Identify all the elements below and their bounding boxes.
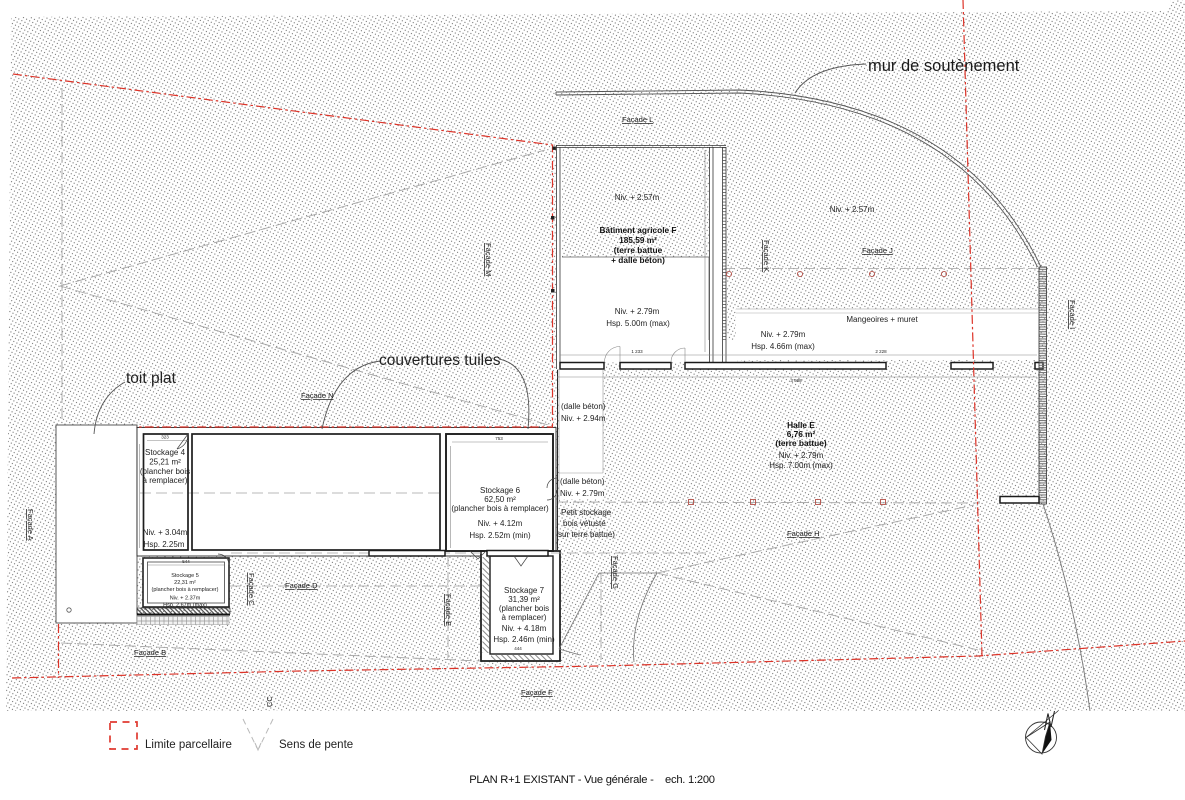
svg-text:Petit stockage: Petit stockage [561,508,612,517]
svg-text:Niv. + 4.12m: Niv. + 4.12m [478,519,523,528]
svg-text:Hsp. 2.46m (min): Hsp. 2.46m (min) [493,635,555,644]
svg-text:Stockage 6: Stockage 6 [480,486,521,495]
svg-text:Hsp. 2.67m (max): Hsp. 2.67m (max) [163,603,207,609]
svg-text:Façade M: Façade M [484,243,493,276]
svg-text:Stockage 7: Stockage 7 [504,586,545,595]
svg-text:Hsp. 7.00m (max): Hsp. 7.00m (max) [769,461,833,470]
svg-text:Façade A: Façade A [26,509,35,541]
svg-text:62,50 m²: 62,50 m² [484,495,516,504]
svg-text:Façade D: Façade D [285,581,318,590]
svg-text:toit plat: toit plat [126,370,177,387]
svg-text:Niv. + 2.79m: Niv. + 2.79m [560,489,605,498]
svg-text:(terre battue: (terre battue [614,245,663,255]
svg-text:Limite parcellaire: Limite parcellaire [145,739,232,751]
svg-text:3 988: 3 988 [790,378,802,383]
svg-text:Stockage 5: Stockage 5 [171,573,199,579]
svg-text:Hsp. 2.25m: Hsp. 2.25m [144,540,185,549]
svg-text:couvertures tuiles: couvertures tuiles [379,352,501,369]
svg-text:Niv. + 2.37m: Niv. + 2.37m [170,596,201,602]
svg-text:Façade I: Façade I [1068,300,1077,329]
svg-text:22,31 m²: 22,31 m² [174,580,196,586]
svg-text:Stockage 4: Stockage 4 [145,448,186,457]
svg-text:444: 444 [514,646,522,651]
svg-text:(plancher bois: (plancher bois [140,467,190,476]
svg-text:Niv. + 2.79m: Niv. + 2.79m [615,307,660,316]
svg-text:Façade J: Façade J [862,246,893,255]
svg-text:(plancher bois à remplacer): (plancher bois à remplacer) [152,587,219,593]
svg-text:Façade C: Façade C [247,573,256,606]
svg-text:Façade L: Façade L [622,115,653,124]
svg-text:à remplacer): à remplacer) [143,476,188,485]
svg-text:Niv. + 4.18m: Niv. + 4.18m [502,624,547,633]
svg-text:544: 544 [182,559,190,564]
svg-text:Façade K: Façade K [762,240,771,272]
svg-text:(plancher bois à remplacer): (plancher bois à remplacer) [451,504,549,513]
svg-text:Niv. + 3.04m: Niv. + 3.04m [143,528,188,537]
svg-text:185,59 m²: 185,59 m² [619,235,657,245]
svg-text:Hsp. 4.66m (max): Hsp. 4.66m (max) [751,342,815,351]
svg-text:Hsp. 5.00m (max): Hsp. 5.00m (max) [606,319,670,328]
svg-text:1 233: 1 233 [631,349,643,354]
svg-text:Niv. + 2.79m: Niv. + 2.79m [779,451,824,460]
svg-text:Niv. + 2.57m: Niv. + 2.57m [615,193,660,202]
svg-text:(dalle béton): (dalle béton) [561,402,606,411]
svg-text:bois vétusté: bois vétusté [563,519,606,528]
svg-text:25,21 m²: 25,21 m² [149,458,181,467]
svg-text:mur de soutènement: mur de soutènement [868,57,1020,75]
svg-text:+ dalle béton): + dalle béton) [611,255,665,265]
svg-text:Sens de pente: Sens de pente [279,739,353,751]
svg-text:753: 753 [495,436,503,441]
svg-text:Façade N: Façade N [301,391,334,400]
svg-text:Façade H: Façade H [787,529,820,538]
svg-text:Façade F: Façade F [521,688,553,697]
svg-text:à remplacer): à remplacer) [502,613,547,622]
svg-text:Façade G: Façade G [611,556,620,589]
svg-text:Façade E: Façade E [444,594,453,626]
svg-text:Niv. + 2.79m: Niv. + 2.79m [761,330,806,339]
svg-text:sur terre battue): sur terre battue) [558,530,615,539]
svg-text:31,39 m²: 31,39 m² [508,595,540,604]
svg-text:CC: CC [265,696,274,707]
svg-text:PLAN R+1 EXISTANT - Vue généra: PLAN R+1 EXISTANT - Vue générale - ech. … [469,774,715,786]
svg-text:323: 323 [161,435,169,440]
svg-text:(plancher bois: (plancher bois [499,604,549,613]
svg-text:Niv. + 2.57m: Niv. + 2.57m [830,205,875,214]
svg-text:Bâtiment agricole F: Bâtiment agricole F [600,225,677,235]
svg-text:Niv. + 2.94m: Niv. + 2.94m [561,414,606,423]
svg-text:2 228: 2 228 [875,349,887,354]
svg-text:(terre battue): (terre battue) [775,438,826,448]
svg-text:Hsp. 2.52m (min): Hsp. 2.52m (min) [469,531,531,540]
svg-text:(dalle béton): (dalle béton) [560,477,605,486]
svg-text:Mangeoires + muret: Mangeoires + muret [846,315,918,324]
svg-text:Façade B: Façade B [134,648,166,657]
